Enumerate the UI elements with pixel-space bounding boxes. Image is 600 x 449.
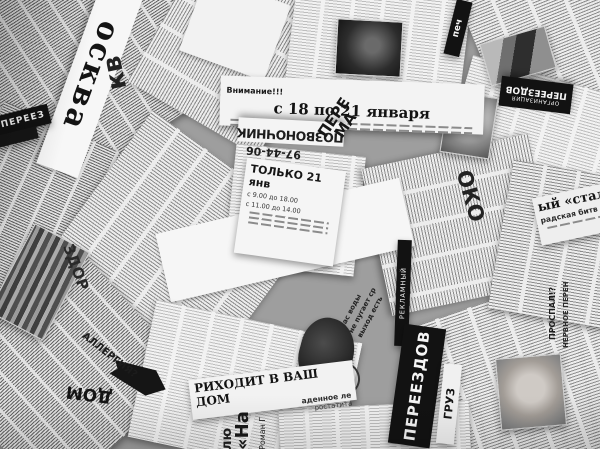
gruz-text: ГРУЗ [441, 388, 457, 421]
reklamny-text: РЕКЛАМНЫЙ [398, 267, 408, 319]
pech-text: печ [451, 18, 465, 38]
roman-byline-vertical: Роман Г [258, 398, 267, 449]
pereezdov-text: ПЕРЕЕЗДОВ [400, 330, 433, 443]
only21-ad-scrap: ТОЛЬКО 21 янв с 9.00 до 18.00 с 11.00 до… [234, 158, 346, 267]
attention-label: Внимание!!! [226, 86, 283, 97]
prospal-vertical: ПРОСПАЛ!? [548, 240, 557, 340]
newspaper-collage: осква кв ПЕРЕЕЗ ОРГАНИЗАЦИЯ ПЕРЕЕЗДОВ пе… [0, 0, 600, 449]
dark-object-photo [335, 18, 404, 77]
nervnoe-vertical: НЕРВНОЕ ПЕРЕН [562, 248, 570, 348]
na-title-vertical: «На [232, 400, 253, 449]
portrait-photo [495, 353, 567, 430]
lyu-vertical: лю [220, 416, 235, 449]
